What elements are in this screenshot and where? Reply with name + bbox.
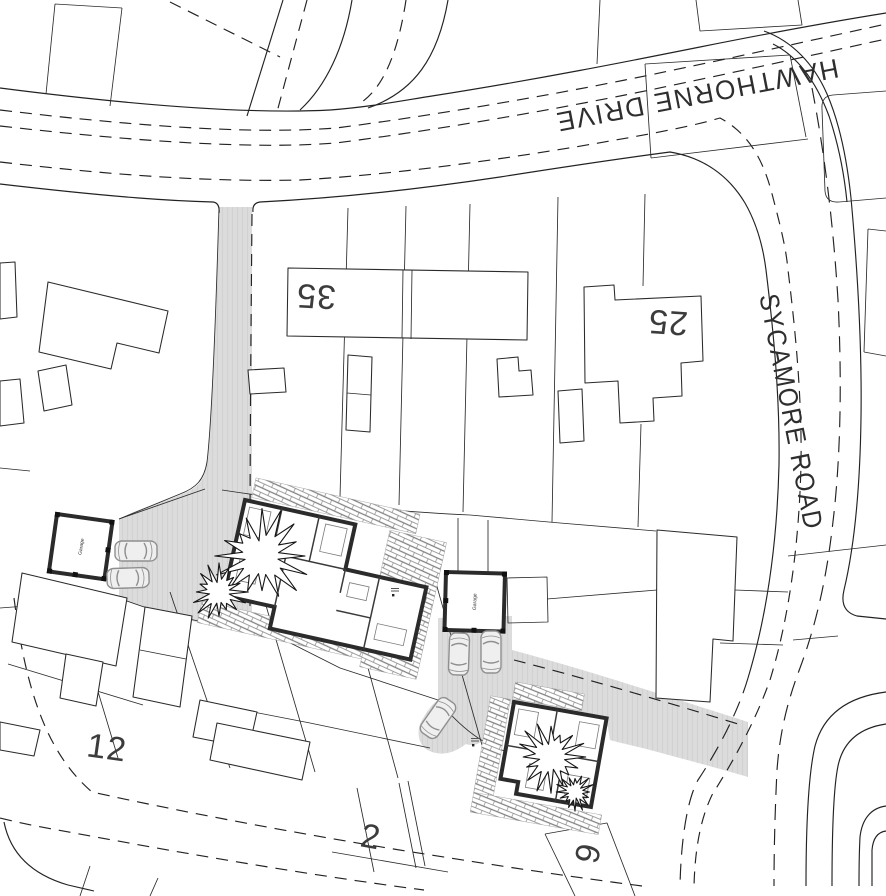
plot-line bbox=[696, 0, 802, 31]
boundary-dash bbox=[277, 0, 307, 112]
wall-post bbox=[500, 628, 505, 633]
road-edges bbox=[0, 0, 886, 896]
plot-line bbox=[119, 207, 219, 519]
plot-boundaries bbox=[0, 0, 886, 896]
plot-tick bbox=[80, 866, 158, 896]
corner-curve bbox=[806, 692, 886, 886]
existing-building bbox=[133, 607, 192, 707]
parked-car bbox=[115, 541, 157, 561]
existing-building bbox=[39, 282, 168, 369]
wall-post bbox=[47, 568, 53, 574]
wall-post bbox=[55, 512, 61, 518]
boundary-dash bbox=[170, 2, 280, 57]
house-number-25: 25 bbox=[647, 302, 689, 343]
site-plan-drawing: Garage Garage HAWTHORNE DRIVE bbox=[0, 0, 886, 896]
existing-building bbox=[210, 723, 310, 780]
existing-building bbox=[0, 379, 24, 426]
house-number-6: 6 bbox=[566, 840, 608, 868]
plot-line bbox=[720, 643, 783, 645]
parked-car bbox=[481, 631, 501, 673]
wall-post bbox=[471, 628, 476, 633]
house-number-2: 2 bbox=[358, 817, 384, 858]
corner-curve bbox=[872, 831, 886, 886]
side-road-edge bbox=[300, 0, 352, 110]
road-label-sycamore-road: SYCAMORE ROAD bbox=[753, 291, 828, 532]
plot-line bbox=[507, 577, 548, 623]
garage-2: Garage bbox=[442, 570, 507, 634]
wall-post bbox=[444, 570, 449, 575]
existing-building bbox=[558, 389, 584, 443]
house-number-12: 12 bbox=[84, 726, 129, 769]
parked-car bbox=[107, 567, 150, 588]
hawthorne-south-edge bbox=[0, 184, 219, 213]
side-road-edge bbox=[247, 0, 283, 116]
wall-post bbox=[105, 547, 111, 553]
existing-building bbox=[0, 722, 40, 756]
existing-building bbox=[248, 368, 286, 394]
wall-post bbox=[101, 576, 107, 582]
existing-building bbox=[38, 365, 72, 411]
corner-curve bbox=[4, 822, 94, 891]
garage-1: Garage bbox=[47, 512, 115, 582]
wall-post bbox=[443, 598, 448, 603]
existing-building bbox=[497, 357, 533, 397]
wall-post bbox=[442, 627, 447, 632]
house-number-35: 35 bbox=[295, 276, 337, 316]
existing-building bbox=[60, 654, 103, 706]
plot-line bbox=[788, 545, 886, 640]
side-road-edge bbox=[368, 0, 448, 108]
plot-line bbox=[46, 4, 122, 106]
boundary-dash bbox=[362, 0, 406, 102]
plot-line bbox=[597, 0, 600, 64]
plot-line bbox=[822, 91, 886, 202]
boundary-dash bbox=[0, 118, 801, 886]
wall-post bbox=[109, 519, 115, 525]
wall-post bbox=[502, 571, 507, 576]
parked-car bbox=[448, 633, 469, 676]
road-dashed-lines bbox=[0, 0, 886, 890]
plot-line bbox=[864, 229, 886, 356]
plot-line bbox=[332, 781, 448, 872]
site-plan-page: Garage Garage HAWTHORNE DRIVE bbox=[0, 0, 886, 896]
plot-line bbox=[458, 518, 488, 572]
wall-post bbox=[72, 572, 78, 578]
existing-building bbox=[0, 262, 17, 319]
garage-label: Garage bbox=[472, 593, 478, 610]
existing-building bbox=[656, 530, 737, 702]
